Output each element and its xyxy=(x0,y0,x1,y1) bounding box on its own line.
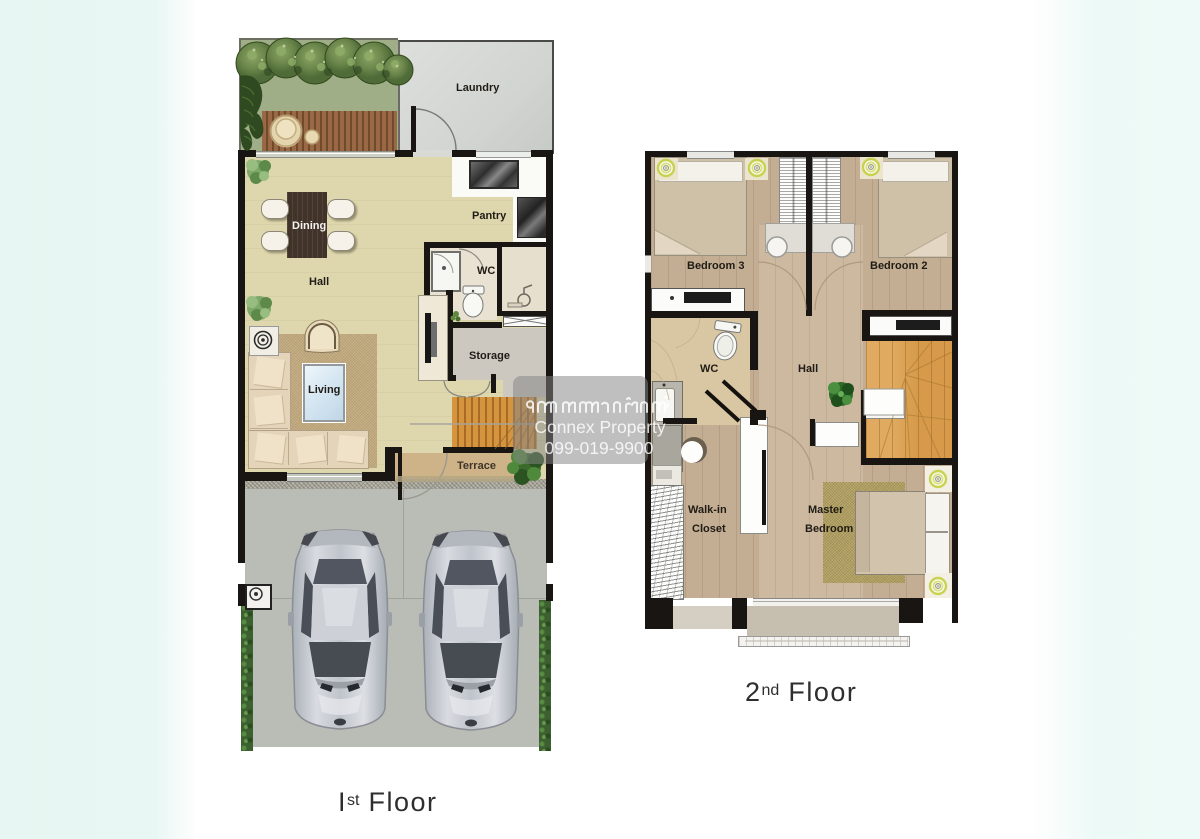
svg-text:Connex Property: Connex Property xyxy=(534,417,666,437)
svg-text:099-019-9900: 099-019-9900 xyxy=(545,438,654,458)
